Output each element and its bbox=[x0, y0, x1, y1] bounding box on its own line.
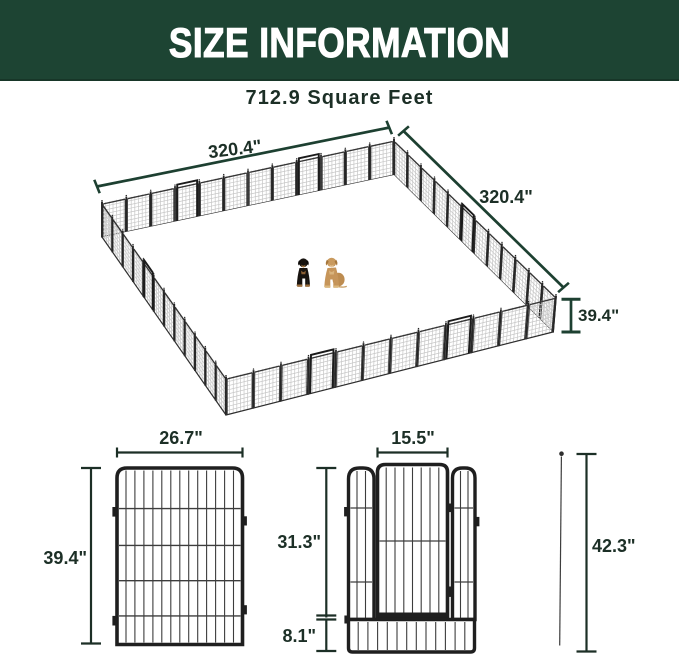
svg-text:39.4": 39.4" bbox=[43, 548, 87, 568]
svg-text:8.1": 8.1" bbox=[282, 626, 316, 646]
svg-text:320.4": 320.4" bbox=[479, 187, 533, 207]
svg-text:31.3": 31.3" bbox=[277, 532, 321, 552]
svg-text:42.3": 42.3" bbox=[592, 536, 636, 556]
svg-text:26.7": 26.7" bbox=[159, 428, 203, 448]
svg-text:320.4": 320.4" bbox=[207, 136, 263, 162]
svg-text:15.5": 15.5" bbox=[391, 428, 435, 448]
svg-text:39.4": 39.4" bbox=[578, 306, 619, 325]
